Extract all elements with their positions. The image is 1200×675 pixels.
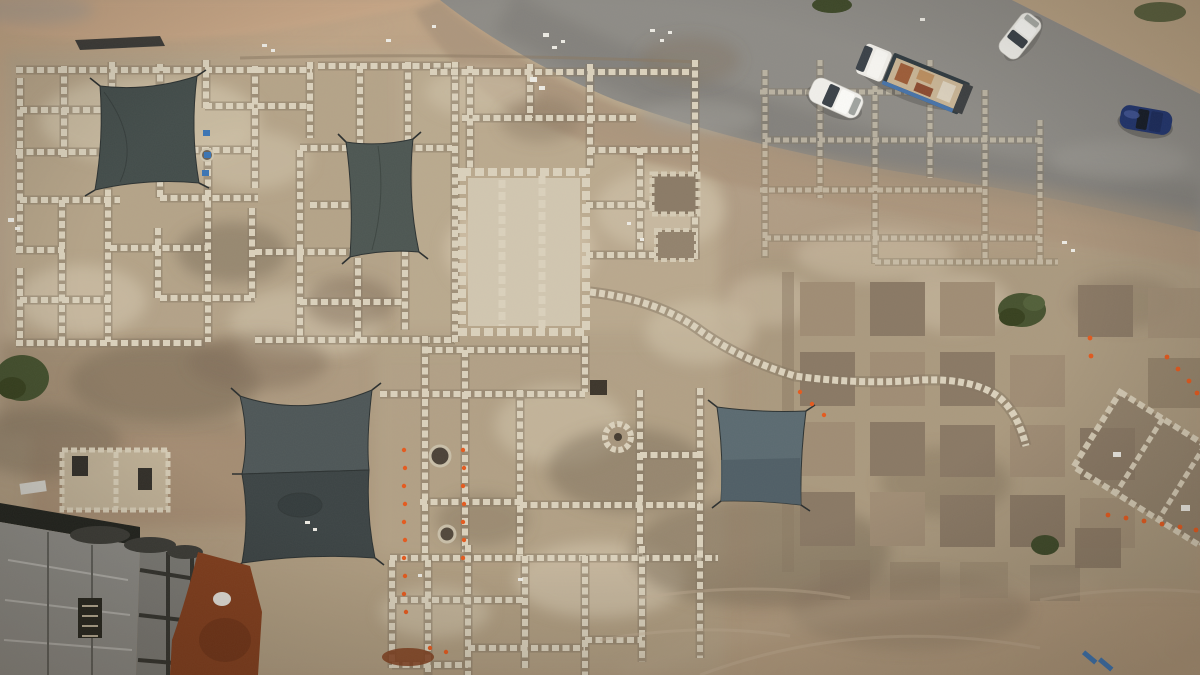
vignette	[0, 0, 1200, 675]
aerial-photo-archaeological-site	[0, 0, 1200, 675]
photo-canvas	[0, 0, 1200, 675]
